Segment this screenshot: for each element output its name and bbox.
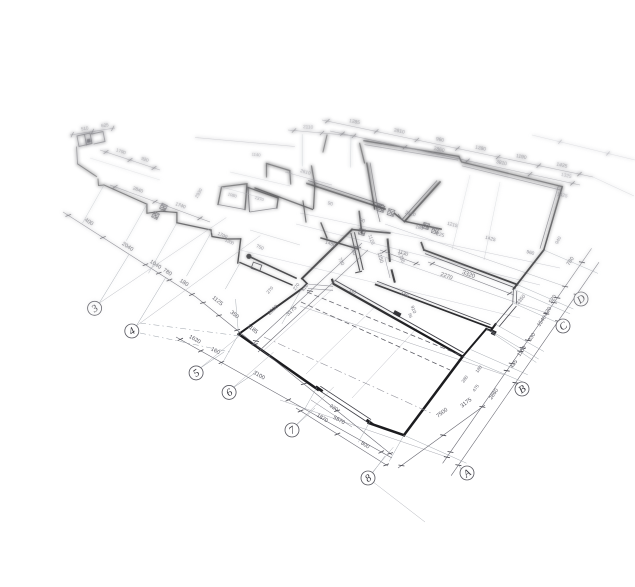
svg-text:750: 750 [256,243,265,251]
svg-text:3320: 3320 [461,270,476,281]
svg-text:1080: 1080 [227,191,238,198]
svg-text:90: 90 [327,200,334,207]
svg-text:625: 625 [101,122,110,128]
svg-text:5570: 5570 [332,415,346,426]
svg-text:3175: 3175 [285,305,298,318]
svg-text:330: 330 [527,332,537,343]
svg-text:2610: 2610 [299,168,311,177]
svg-text:1370: 1370 [254,195,265,202]
svg-text:7500: 7500 [436,407,450,419]
svg-text:920: 920 [141,156,150,163]
svg-text:1125: 1125 [366,234,375,246]
svg-text:1425: 1425 [484,235,496,244]
svg-text:3350: 3350 [515,294,527,307]
svg-text:1185: 1185 [246,323,259,335]
svg-text:180: 180 [475,364,484,374]
svg-text:2270: 2270 [439,272,453,282]
svg-text:2040: 2040 [120,241,134,253]
svg-text:510: 510 [80,125,89,131]
svg-text:2930: 2930 [194,187,204,199]
svg-text:1040: 1040 [148,259,162,271]
svg-text:2810: 2810 [393,127,405,135]
svg-text:1425: 1425 [556,162,568,170]
svg-text:1280: 1280 [474,145,486,153]
svg-text:1285: 1285 [348,118,360,126]
svg-text:3810: 3810 [495,159,507,167]
svg-text:1620: 1620 [188,334,202,345]
svg-text:220: 220 [328,403,339,413]
svg-text:3175: 3175 [460,397,474,409]
svg-text:1125: 1125 [211,295,224,307]
svg-text:350: 350 [229,310,240,321]
svg-text:435: 435 [509,359,519,370]
svg-text:180: 180 [400,291,410,299]
svg-text:1150: 1150 [376,252,385,264]
svg-text:2110: 2110 [303,124,314,131]
svg-text:3100: 3100 [252,370,266,381]
svg-text:1190: 1190 [515,153,527,161]
svg-text:960: 960 [435,136,445,144]
svg-text:2860: 2860 [488,388,500,401]
svg-text:280: 280 [461,374,470,384]
svg-text:1140: 1140 [251,152,261,158]
svg-text:475: 475 [472,383,481,393]
svg-text:1325: 1325 [560,172,572,180]
svg-text:220: 220 [543,306,553,317]
svg-text:225: 225 [436,231,446,239]
svg-text:940: 940 [554,235,563,245]
svg-text:1215: 1215 [446,221,458,230]
svg-text:1870: 1870 [315,413,328,424]
svg-text:1790: 1790 [115,147,127,155]
svg-text:960: 960 [526,249,536,257]
svg-text:270: 270 [265,285,274,294]
